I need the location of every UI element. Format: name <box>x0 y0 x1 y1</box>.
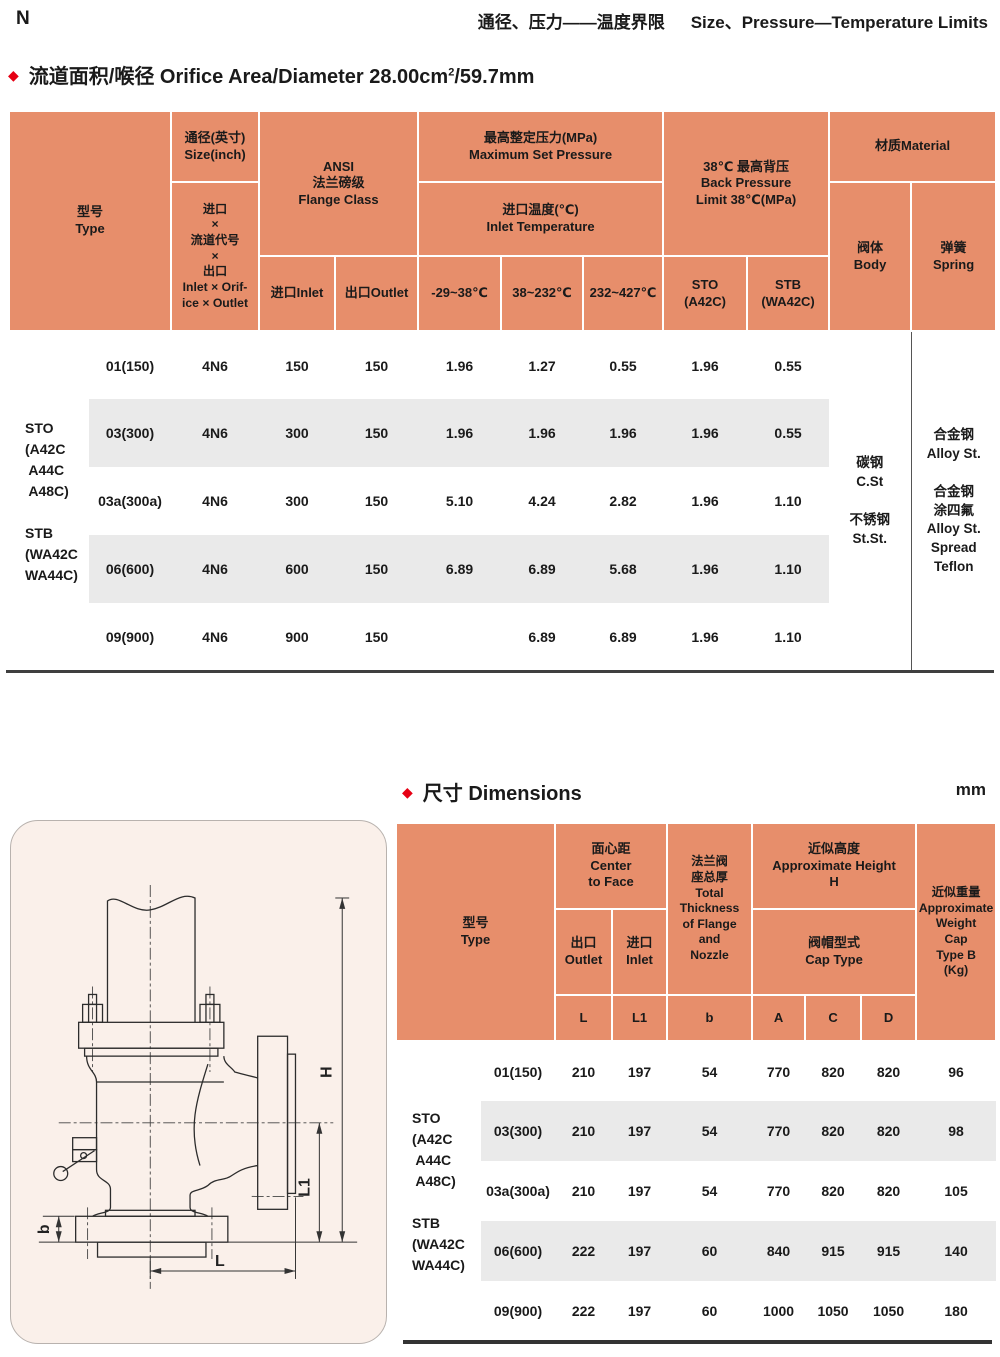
cell: 840 <box>752 1221 805 1281</box>
cell: 01(150) <box>481 1041 555 1101</box>
cell: 54 <box>667 1101 752 1161</box>
cell: 1.10 <box>747 603 829 671</box>
table-header-row: 型号 Type 面心距 Center to Face 法兰阀 座总厚 Total… <box>396 823 996 909</box>
cell: 4N6 <box>171 331 259 399</box>
cell: 770 <box>752 1161 805 1221</box>
cell: 210 <box>555 1101 612 1161</box>
cell: 06(600) <box>89 535 171 603</box>
cell: 0.55 <box>747 399 829 467</box>
th-stb: STB (WA42C) <box>747 256 829 331</box>
cell: 210 <box>555 1161 612 1221</box>
cell: 915 <box>805 1221 861 1281</box>
page-corner-mark: N <box>16 8 30 30</box>
th-approximate-height: 近似高度 Approximate Height H <box>752 823 916 909</box>
th-spring-material: 弹簧 Spring <box>911 182 996 331</box>
th-sto: STO (A42C) <box>663 256 747 331</box>
cell: 4N6 <box>171 603 259 671</box>
th-temp-range-2: 38~232℃ <box>501 256 583 331</box>
th-dim-L: L <box>555 995 612 1041</box>
table-row: STO (A42C A44C A48C) STB (WA42C WA44C) 0… <box>9 331 996 399</box>
cell: 150 <box>259 331 335 399</box>
cell: 1050 <box>861 1281 916 1341</box>
cell: 1.96 <box>663 535 747 603</box>
cell: 197 <box>612 1221 667 1281</box>
cell: 5.68 <box>583 535 663 603</box>
cell: 01(150) <box>89 331 171 399</box>
cell: 1.96 <box>418 331 501 399</box>
dim-label-b: b <box>36 1224 53 1234</box>
th-outlet: 出口 Outlet <box>555 909 612 995</box>
cell: 03a(300a) <box>481 1161 555 1221</box>
diamond-bullet-icon: ◆ <box>402 785 413 799</box>
th-back-pressure-limit: 38℃ 最高背压 Back Pressure Limit 38℃(MPa) <box>663 111 829 256</box>
cell: 4N6 <box>171 467 259 535</box>
cell: 197 <box>612 1041 667 1101</box>
cell: 197 <box>612 1281 667 1341</box>
valve-drawing: H L1 L b <box>11 821 386 1343</box>
cell: 1.96 <box>663 331 747 399</box>
cell: 6.89 <box>501 603 583 671</box>
cell: 60 <box>667 1281 752 1341</box>
table-header-row: 型号 Type 通径(英寸) Size(inch) ANSI 法兰磅级 Flan… <box>9 111 996 182</box>
cell: 96 <box>916 1041 996 1101</box>
orifice-area-title-tail: /59.7mm <box>454 66 534 88</box>
cell: 820 <box>805 1041 861 1101</box>
dimensions-title: 尺寸 Dimensions <box>423 777 582 806</box>
cell: 150 <box>335 467 418 535</box>
th-inlet: 进口 Inlet <box>612 909 667 995</box>
table-row: 09(900) 222 197 60 1000 1050 1050 180 <box>396 1281 996 1341</box>
cell: 60 <box>667 1221 752 1281</box>
diamond-bullet-icon: ◆ <box>8 68 19 82</box>
th-flange-nozzle-thickness: 法兰阀 座总厚 Total Thickness of Flange and No… <box>667 823 752 995</box>
th-temp-range-3: 232~427℃ <box>583 256 663 331</box>
table-row: 03a(300a) 210 197 54 770 820 820 105 <box>396 1161 996 1221</box>
cell: 4.24 <box>501 467 583 535</box>
cell: 6.89 <box>501 535 583 603</box>
th-size-inch: 通径(英寸) Size(inch) <box>171 111 259 182</box>
th-dim-A: A <box>752 995 805 1041</box>
th-dim-D: D <box>861 995 916 1041</box>
th-cap-type: 阀帽型式 Cap Type <box>752 909 916 995</box>
dim-label-l: L <box>215 1253 225 1270</box>
cell: 210 <box>555 1041 612 1101</box>
cell: 770 <box>752 1101 805 1161</box>
cell: 140 <box>916 1221 996 1281</box>
cell: 197 <box>612 1161 667 1221</box>
cell: 6.89 <box>583 603 663 671</box>
cell: 5.10 <box>418 467 501 535</box>
table-row: STO (A42C A44C A48C) STB (WA42C WA44C) 0… <box>396 1041 996 1101</box>
th-dim-b: b <box>667 995 752 1041</box>
th-temp-range-1: -29~38℃ <box>418 256 501 331</box>
cell: 1050 <box>805 1281 861 1341</box>
th-approximate-weight: 近似重量 Approximate Weight Cap Type B (Kg) <box>916 823 996 1041</box>
cell: 222 <box>555 1221 612 1281</box>
cell: 300 <box>259 399 335 467</box>
cell: 1.10 <box>747 467 829 535</box>
cell: 98 <box>916 1101 996 1161</box>
cell: 1000 <box>752 1281 805 1341</box>
catalog-page: N 通径、压力——温度界限 Size、Pressure—Temperature … <box>0 0 1000 1357</box>
cell: 150 <box>335 603 418 671</box>
table2-bottom-rule <box>403 1340 992 1344</box>
cell: 6.89 <box>418 535 501 603</box>
cell: 105 <box>916 1161 996 1221</box>
cell: 1.96 <box>501 399 583 467</box>
cell: 1.96 <box>663 603 747 671</box>
th-max-set-pressure: 最高整定压力(MPa) Maximum Set Pressure <box>418 111 663 182</box>
th-body-material: 阀体 Body <box>829 182 911 331</box>
table-row: 03(300) 210 197 54 770 820 820 98 <box>396 1101 996 1161</box>
cell <box>418 603 501 671</box>
cell: 1.27 <box>501 331 583 399</box>
dim-label-l1: L1 <box>296 1178 313 1197</box>
section2-title: ◆ 尺寸 Dimensions <box>402 777 582 806</box>
th-inlet-orifice-outlet: 进口 × 流道代号 × 出口 Inlet × Orif- ice × Outle… <box>171 182 259 331</box>
cell: 150 <box>335 331 418 399</box>
cell: 03a(300a) <box>89 467 171 535</box>
th-flange-inlet: 进口Inlet <box>259 256 335 331</box>
section1-title: ◆ 流道面积/喉径 Orifice Area/Diameter 28.00cm2… <box>8 60 534 89</box>
cell: 300 <box>259 467 335 535</box>
cell: 1.96 <box>583 399 663 467</box>
pressure-temperature-table: 型号 Type 通径(英寸) Size(inch) ANSI 法兰磅级 Flan… <box>8 110 997 671</box>
th-inlet-temperature: 进口温度(℃) Inlet Temperature <box>418 182 663 256</box>
th-type: 型号 Type <box>396 823 555 1041</box>
type-group-label: STO (A42C A44C A48C) STB (WA42C WA44C) <box>9 331 89 671</box>
cell: 0.55 <box>583 331 663 399</box>
cell: 150 <box>335 399 418 467</box>
th-center-to-face: 面心距 Center to Face <box>555 823 667 909</box>
page-header: 通径、压力——温度界限 Size、Pressure—Temperature Li… <box>478 8 988 33</box>
th-material: 材质Material <box>829 111 996 182</box>
cell: 900 <box>259 603 335 671</box>
cell: 1.96 <box>418 399 501 467</box>
spring-material-cell: 合金钢 Alloy St. 合金钢 涂四氟 Alloy St. Spread T… <box>911 331 996 671</box>
orifice-area-title: 流道面积/喉径 Orifice Area/Diameter 28.00cm2/5… <box>29 60 535 89</box>
cell: 600 <box>259 535 335 603</box>
cell: 1.10 <box>747 535 829 603</box>
cell: 150 <box>335 535 418 603</box>
cell: 03(300) <box>89 399 171 467</box>
orifice-area-title-main: 流道面积/喉径 Orifice Area/Diameter 28.00cm <box>29 66 448 88</box>
center-lines <box>59 885 334 1289</box>
th-type: 型号 Type <box>9 111 171 331</box>
cell: 4N6 <box>171 535 259 603</box>
th-dim-C: C <box>805 995 861 1041</box>
unit-label: mm <box>956 780 986 800</box>
dim-label-h: H <box>318 1066 335 1078</box>
table1-bottom-rule <box>6 670 994 673</box>
cell: 820 <box>861 1161 916 1221</box>
cell: 1.96 <box>663 467 747 535</box>
body-material-cell: 碳钢 C.St 不锈钢 St.St. <box>829 331 911 671</box>
cell: 820 <box>805 1101 861 1161</box>
cell: 09(900) <box>89 603 171 671</box>
cell: 0.55 <box>747 331 829 399</box>
cell: 09(900) <box>481 1281 555 1341</box>
header-title-cn: 通径、压力——温度界限 <box>478 8 665 33</box>
header-title-en: Size、Pressure—Temperature Limits <box>691 8 988 33</box>
dimensions-table: 型号 Type 面心距 Center to Face 法兰阀 座总厚 Total… <box>395 822 997 1341</box>
cell: 222 <box>555 1281 612 1341</box>
cell: 820 <box>861 1041 916 1101</box>
cell: 180 <box>916 1281 996 1341</box>
cell: 2.82 <box>583 467 663 535</box>
cell: 06(600) <box>481 1221 555 1281</box>
cell: 820 <box>805 1161 861 1221</box>
cell: 915 <box>861 1221 916 1281</box>
cell: 03(300) <box>481 1101 555 1161</box>
cell: 820 <box>861 1101 916 1161</box>
table-row: 06(600) 222 197 60 840 915 915 140 <box>396 1221 996 1281</box>
dimension-lines: H L1 L b <box>36 898 357 1279</box>
cell: 1.96 <box>663 399 747 467</box>
valve-outline <box>54 896 296 1257</box>
cell: 54 <box>667 1161 752 1221</box>
cell: 770 <box>752 1041 805 1101</box>
cell: 197 <box>612 1101 667 1161</box>
valve-drawing-panel: H L1 L b <box>10 820 387 1344</box>
th-flange-outlet: 出口Outlet <box>335 256 418 331</box>
cell: 54 <box>667 1041 752 1101</box>
cell: 4N6 <box>171 399 259 467</box>
th-dim-L1: L1 <box>612 995 667 1041</box>
th-ansi-flange-class: ANSI 法兰磅级 Flange Class <box>259 111 418 256</box>
type-group-label: STO (A42C A44C A48C) STB (WA42C WA44C) <box>396 1041 481 1341</box>
